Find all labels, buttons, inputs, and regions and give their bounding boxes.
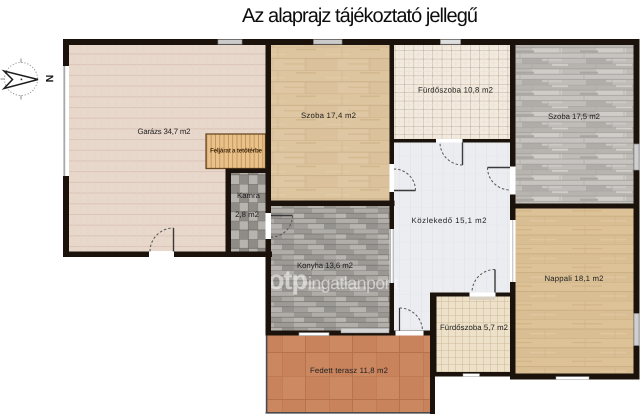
- svg-text:Nappali 18,1 m2: Nappali 18,1 m2: [545, 274, 604, 283]
- svg-text:Kamra: Kamra: [237, 191, 261, 200]
- svg-text:2,8 m2: 2,8 m2: [235, 210, 259, 219]
- svg-text:Konyha 13,6 m2: Konyha 13,6 m2: [297, 261, 353, 270]
- svg-text:Az alaprajz tájékoztató jelleg: Az alaprajz tájékoztató jellegű: [242, 5, 478, 27]
- svg-text:Fürdőszoba 10,8 m2: Fürdőszoba 10,8 m2: [418, 85, 493, 94]
- svg-text:Fedett terasz 11,8 m2: Fedett terasz 11,8 m2: [310, 366, 388, 375]
- svg-text:Szoba 17,4 m2: Szoba 17,4 m2: [301, 111, 356, 120]
- svg-text:Szoba 17,5 m2: Szoba 17,5 m2: [548, 112, 600, 121]
- svg-text:Garázs 34,7 m2: Garázs 34,7 m2: [138, 127, 191, 136]
- svg-text:Közlekedő 15,1 m2: Közlekedő 15,1 m2: [412, 216, 487, 225]
- svg-text:Feljárat a tetőtérbe: Feljárat a tetőtérbe: [210, 148, 262, 155]
- svg-text:Fürdőszoba 5,7 m2: Fürdőszoba 5,7 m2: [440, 323, 508, 332]
- svg-text:N: N: [43, 75, 55, 83]
